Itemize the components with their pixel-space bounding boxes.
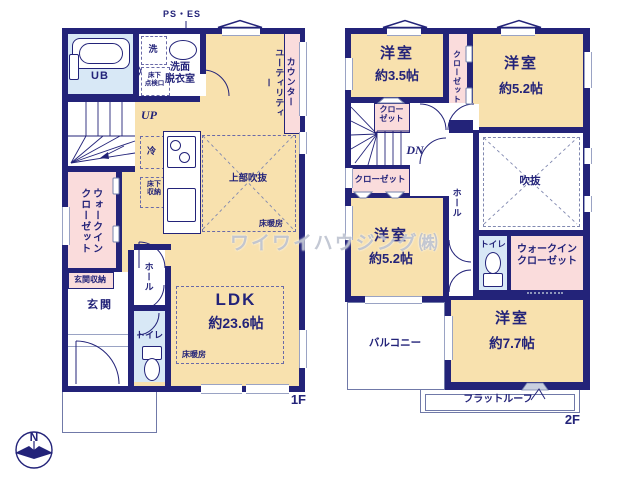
wall-hall-top — [134, 244, 171, 250]
wall-stairs-bottom — [116, 166, 135, 172]
compass-n-label: N — [30, 430, 39, 444]
window-counter-right — [299, 42, 307, 116]
toilet1-bowl-icon — [144, 358, 160, 381]
room77-size-label: 約7.7帖 — [481, 336, 543, 352]
porch-outline — [62, 392, 157, 433]
floor-storage-label: 床下 収納 — [140, 181, 168, 198]
floor2-label: 2F — [548, 412, 580, 427]
toilet2-label: トイレ — [479, 239, 507, 249]
compass: N — [15, 430, 53, 468]
wall-hall-right — [165, 266, 171, 386]
stove-burner2-icon — [179, 152, 190, 163]
window-room35-left — [345, 58, 353, 90]
dn-label: DN — [401, 143, 429, 157]
room-stairs-1f — [68, 102, 135, 166]
up-label: UP — [135, 108, 163, 122]
fridge-label: 冷 — [140, 146, 163, 157]
room52a-label: 洋室 — [497, 55, 545, 73]
laundry-label: 洗 — [141, 44, 165, 55]
entrance-step-line2 — [68, 346, 128, 347]
void-label: 吹抜 — [508, 175, 552, 187]
wic1-label: ウォークイン クローゼット — [78, 180, 102, 262]
window-room52b-balcony — [365, 296, 422, 304]
window-room52a-right — [584, 52, 592, 88]
floorplan-canvas: N PS・ES UB 洗 床下 点検口 洗面 脱衣室 ユーティリティー カウンタ… — [0, 0, 640, 480]
room-entrance — [68, 272, 128, 386]
window-ldk-right2 — [299, 330, 307, 368]
utility-label: ユーティリティー — [263, 44, 284, 122]
ldk-label: LDK — [203, 290, 269, 310]
closet-b-label: クローゼット — [352, 174, 408, 184]
window-room77-balcony — [444, 316, 453, 360]
entrance-step-line1 — [68, 334, 128, 335]
roof-vent-triangles — [218, 21, 541, 28]
toilet1-label: トイレ — [134, 330, 165, 341]
closet-strip-label: クローゼット — [452, 46, 461, 108]
wic2-dotted-threshold — [527, 289, 563, 294]
wall-hall-toilet — [134, 305, 165, 311]
floor1-label: 1F — [274, 392, 306, 407]
window-room35-top — [387, 28, 421, 36]
hall1-label: ホール — [143, 255, 154, 299]
window-void-right2 — [584, 196, 592, 212]
room52a-size-label: 約5.2帖 — [490, 81, 552, 96]
room35-size-label: 約3.5帖 — [366, 68, 428, 83]
ub-label: UB — [84, 70, 116, 83]
stove-burner1-icon — [170, 140, 181, 151]
window-ldk-bottom1 — [201, 384, 242, 394]
room77-label: 洋室 — [488, 310, 536, 328]
window-ldk-right1 — [299, 132, 307, 154]
entry-label: 玄関 — [78, 299, 122, 312]
counter-label: カウンター — [285, 50, 296, 114]
ps-es-label: PS・ES — [158, 9, 206, 20]
toilet2-tank-icon — [483, 273, 503, 287]
door-gap-room52a — [473, 104, 479, 130]
toilet2-bowl-icon — [485, 252, 501, 274]
bath-fixture-icon — [69, 54, 79, 80]
watermark-text: ワイワイハウジング㈱ — [230, 228, 450, 255]
window-room52a-top — [501, 28, 535, 36]
kitchen-sink-icon — [167, 188, 196, 222]
wall-hall-left — [128, 250, 134, 386]
wash-basin-icon — [169, 40, 197, 60]
window-ldk-top — [222, 28, 260, 36]
window-wic-left — [62, 207, 70, 245]
washroom-label: 洗面 脱衣室 — [158, 62, 202, 86]
room35-label: 洋室 — [373, 45, 421, 63]
closet-a-label: クロー ゼット — [375, 105, 408, 124]
room-35 — [351, 34, 443, 97]
wic2-label: ウォークイン クローゼット — [514, 244, 580, 268]
hall2-label: ホール — [451, 183, 462, 223]
compass-needle — [15, 446, 53, 459]
flat-roof-label: フラットルーフ — [452, 394, 544, 406]
bathtub-inner-icon — [79, 43, 123, 64]
open-above-label: 上部吹抜 — [218, 173, 278, 184]
heating-b-label: 床暖房 — [173, 350, 215, 359]
window-void-right1 — [584, 148, 592, 164]
entry-storage-label: 玄関収納 — [68, 275, 112, 284]
ldk-size-label: 約23.6帖 — [193, 315, 279, 332]
balcony-label: バルコニー — [357, 337, 433, 349]
wall-closet-strip-bottom — [449, 120, 473, 133]
